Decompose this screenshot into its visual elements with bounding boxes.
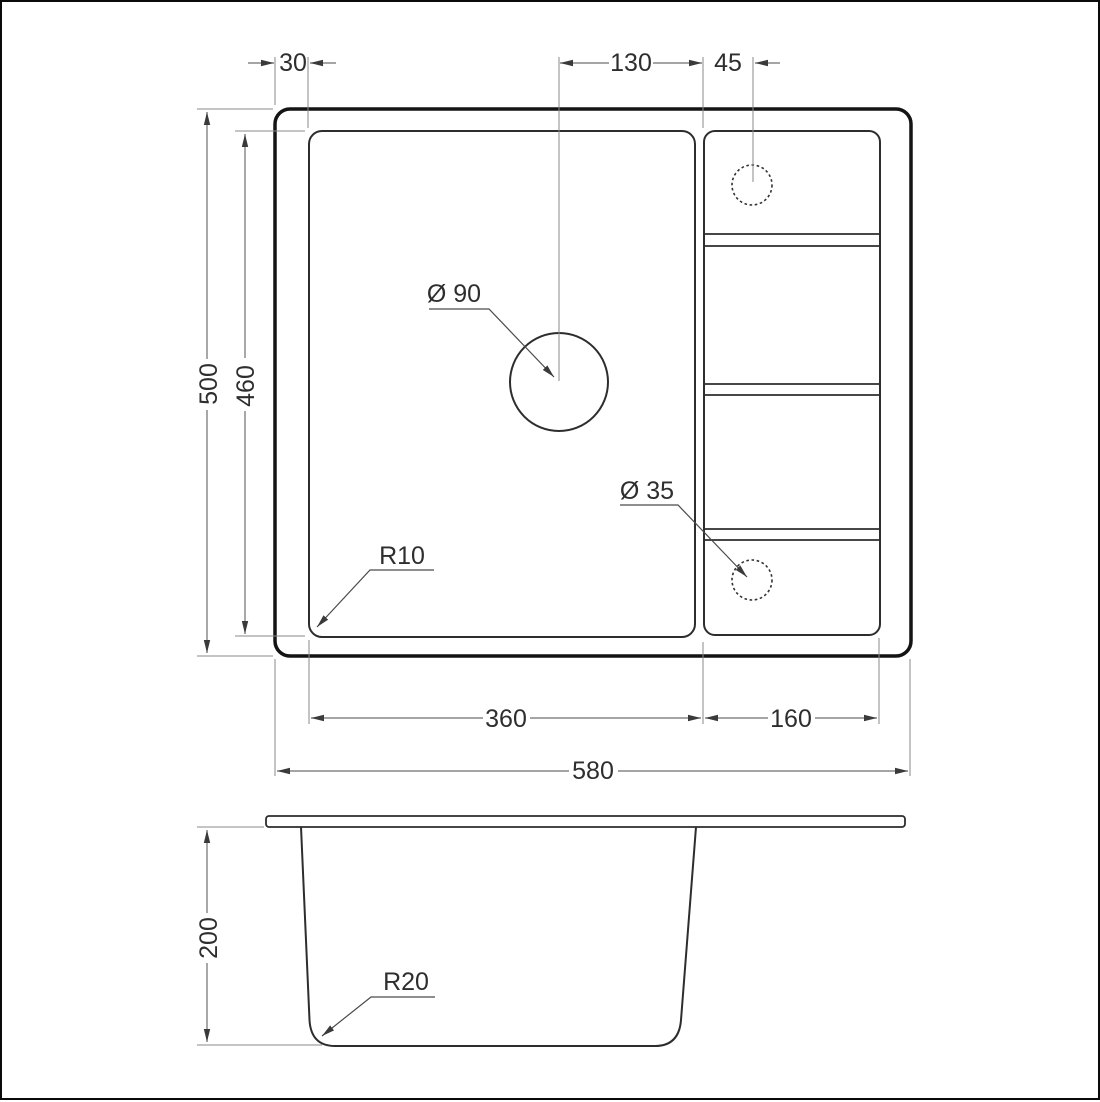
dim-drainer-width: 160 [705, 638, 879, 733]
bowl-section-profile [301, 827, 696, 1046]
label-bottom-corner-radius: R20 [322, 968, 435, 1036]
tap-hole-top-circle [732, 165, 772, 205]
dim-divider-to-tap: 45 [714, 49, 780, 182]
dim-overall-width-value: 580 [572, 757, 614, 785]
label-tap-diameter-value: Ø 35 [620, 477, 674, 505]
dim-drain-to-divider: 130 [559, 49, 703, 381]
rim-profile [266, 816, 905, 827]
dim-divider-to-tap-value: 45 [714, 49, 742, 77]
dim-bowl-depth: 460 [232, 131, 305, 636]
label-bottom-corner-radius-value: R20 [383, 968, 429, 996]
dim-bowl-width: 360 [309, 640, 703, 733]
label-bowl-corner-radius-value: R10 [379, 542, 425, 570]
dim-overall-depth-value: 500 [195, 363, 223, 405]
sink-outer-outline [275, 109, 911, 656]
label-drain-diameter-value: Ø 90 [427, 280, 481, 308]
dim-overall-width: 580 [275, 659, 910, 785]
dim-bowl-width-value: 360 [485, 705, 527, 733]
dim-rim-to-bowl: 30 [248, 49, 336, 128]
drainer-grooves [705, 234, 879, 540]
sink-drawing: 30 130 45 500 460 Ø 90 Ø 35 R10 [2, 2, 1100, 1102]
top-view [275, 109, 911, 656]
label-drain-diameter: Ø 90 [427, 280, 554, 377]
label-tap-diameter: Ø 35 [620, 477, 747, 577]
drawing-sheet: 30 130 45 500 460 Ø 90 Ø 35 R10 [0, 0, 1100, 1100]
dim-drain-to-divider-value: 130 [610, 49, 652, 77]
dim-drainer-width-value: 160 [770, 705, 812, 733]
dim-bowl-height-value: 200 [195, 917, 223, 959]
bowl-outline [309, 131, 695, 637]
label-bowl-corner-radius: R10 [317, 542, 434, 627]
tap-hole-bottom-circle [732, 560, 772, 600]
side-view [266, 816, 905, 1046]
dim-bowl-depth-value: 460 [232, 365, 260, 407]
dim-rim-to-bowl-value: 30 [279, 49, 307, 77]
